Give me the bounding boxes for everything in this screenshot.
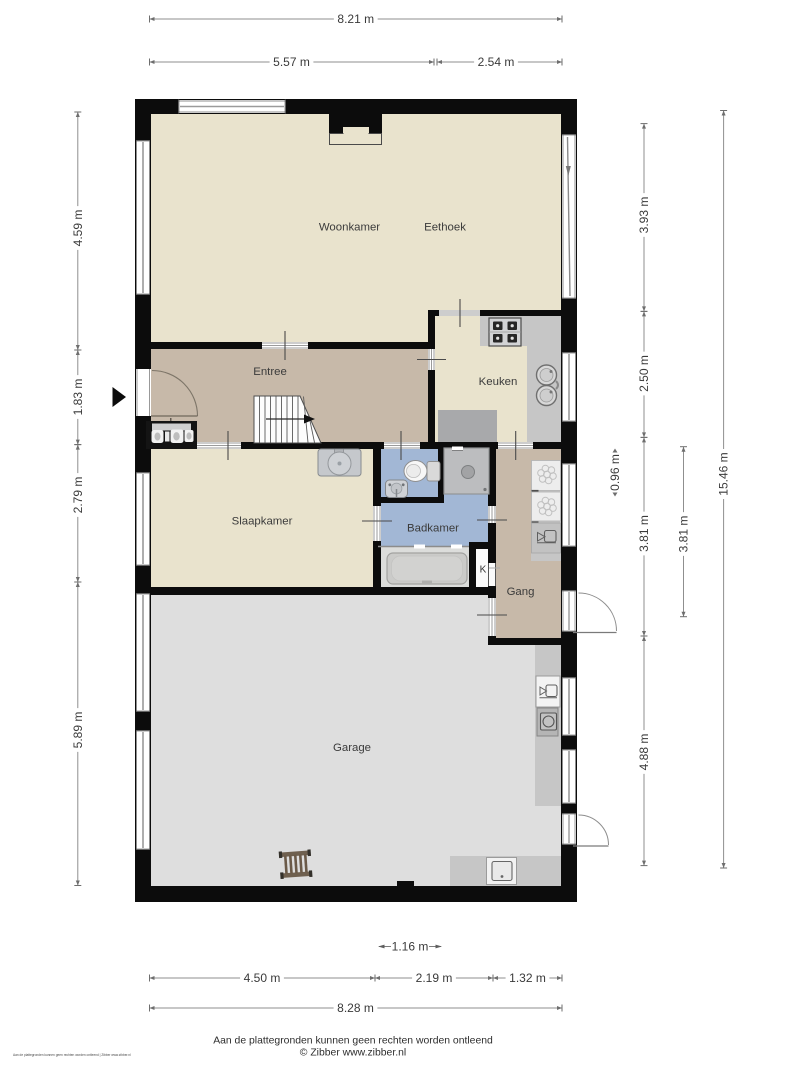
svg-text:4.88 m: 4.88 m: [637, 734, 651, 771]
svg-text:1.83 m: 1.83 m: [71, 379, 85, 416]
svg-text:Eethoek: Eethoek: [424, 222, 466, 234]
svg-text:3.81 m: 3.81 m: [637, 515, 651, 552]
svg-text:2.19 m: 2.19 m: [416, 971, 453, 985]
svg-text:Woonkamer: Woonkamer: [319, 222, 380, 234]
svg-text:3.93 m: 3.93 m: [637, 197, 651, 234]
svg-text:3.81 m: 3.81 m: [677, 516, 691, 553]
svg-text:15.46 m: 15.46 m: [717, 452, 731, 495]
svg-text:© Zibber www.zibber.nl: © Zibber www.zibber.nl: [300, 1048, 406, 1059]
svg-text:2.79 m: 2.79 m: [71, 477, 85, 514]
svg-text:5.89 m: 5.89 m: [71, 712, 85, 749]
svg-text:Aan de plattegronden kunnen ge: Aan de plattegronden kunnen geen rechten…: [13, 1053, 131, 1057]
svg-text:Garage: Garage: [333, 742, 371, 754]
svg-text:4.59 m: 4.59 m: [71, 210, 85, 247]
svg-text:5.57 m: 5.57 m: [273, 55, 310, 69]
svg-text:2.50 m: 2.50 m: [637, 355, 651, 392]
svg-text:Badkamer: Badkamer: [407, 523, 459, 535]
svg-text:8.28 m: 8.28 m: [337, 1001, 374, 1015]
svg-text:0.96 m: 0.96 m: [608, 454, 622, 491]
svg-text:4.50 m: 4.50 m: [244, 971, 281, 985]
svg-text:Gang: Gang: [507, 586, 535, 598]
svg-text:Aan de plattegronden kunnen ge: Aan de plattegronden kunnen geen rechten…: [213, 1036, 493, 1047]
svg-text:8.21 m: 8.21 m: [337, 12, 374, 26]
svg-text:Entree: Entree: [253, 366, 287, 378]
svg-text:K: K: [480, 565, 487, 576]
svg-text:1.16 m: 1.16 m: [392, 940, 429, 954]
svg-text:Slaapkamer: Slaapkamer: [232, 516, 293, 528]
svg-text:2.54 m: 2.54 m: [478, 55, 515, 69]
svg-text:1.32 m: 1.32 m: [509, 971, 546, 985]
svg-text:Keuken: Keuken: [479, 376, 518, 388]
